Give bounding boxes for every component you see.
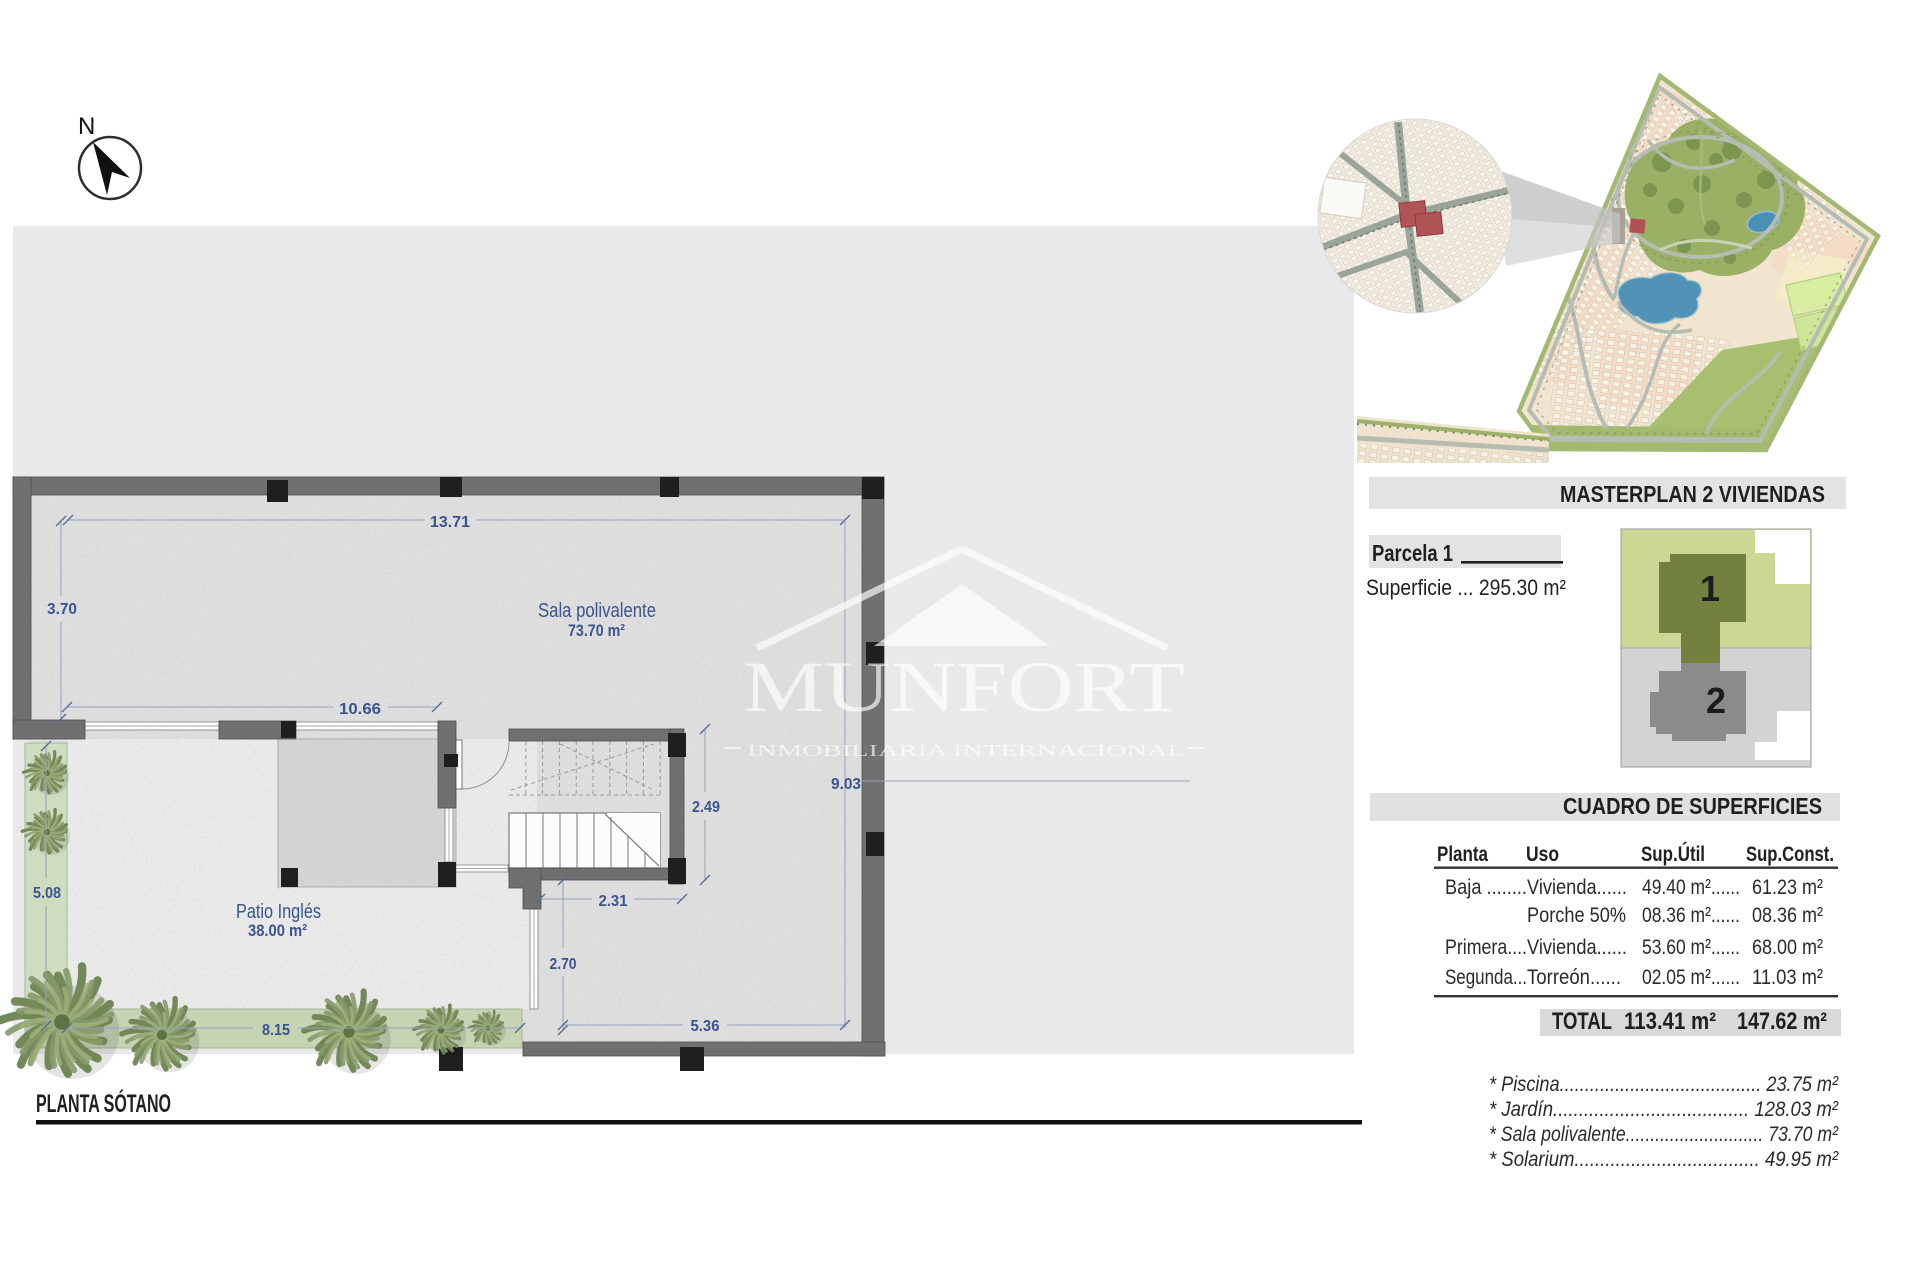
svg-text:Parcela 1: Parcela 1 <box>1372 540 1453 566</box>
svg-text:Primera....: Primera.... <box>1445 936 1527 959</box>
svg-text:38.00 m²: 38.00 m² <box>248 921 307 940</box>
svg-text:08.36 m²: 08.36 m² <box>1752 904 1823 927</box>
svg-text:Baja ........: Baja ........ <box>1445 876 1527 899</box>
svg-text:Segunda...: Segunda... <box>1445 966 1527 989</box>
svg-text:73.70 m²: 73.70 m² <box>568 621 625 640</box>
svg-text:* Piscina.....................: * Piscina...............................… <box>1489 1073 1839 1096</box>
svg-text:Sala polivalente: Sala polivalente <box>538 600 656 622</box>
svg-text:* Jardín......................: * Jardín................................… <box>1489 1098 1839 1121</box>
svg-text:* Solarium....................: * Solarium..............................… <box>1489 1148 1839 1171</box>
svg-text:10.66: 10.66 <box>339 701 381 718</box>
svg-text:2.31: 2.31 <box>599 893 628 910</box>
svg-text:* Sala polivalente............: * Sala polivalente......................… <box>1489 1123 1839 1146</box>
svg-text:5.36: 5.36 <box>691 1018 720 1035</box>
svg-text:N: N <box>78 113 95 140</box>
svg-text:2.49: 2.49 <box>692 799 720 816</box>
svg-text:Superficie ... 295.30 m²: Superficie ... 295.30 m² <box>1366 575 1566 600</box>
svg-text:113.41 m²: 113.41 m² <box>1624 1008 1716 1035</box>
svg-text:MASTERPLAN 2 VIVIENDAS: MASTERPLAN 2 VIVIENDAS <box>1560 481 1825 507</box>
svg-text:Sup.Útil: Sup.Útil <box>1641 842 1705 866</box>
svg-text:MUNFORT: MUNFORT <box>743 647 1185 727</box>
svg-text:CUADRO DE SUPERFICIES: CUADRO DE SUPERFICIES <box>1563 793 1822 819</box>
svg-text:INMOBILIARIA INTERNACIONAL: INMOBILIARIA INTERNACIONAL <box>747 741 1185 760</box>
svg-text:Vivienda......: Vivienda...... <box>1527 876 1627 899</box>
svg-text:Torreón......: Torreón...... <box>1527 966 1621 989</box>
svg-text:53.60 m²......: 53.60 m²...... <box>1642 936 1740 959</box>
svg-text:PLANTA SÓTANO: PLANTA SÓTANO <box>36 1088 171 1118</box>
svg-text:Planta: Planta <box>1437 843 1488 866</box>
svg-text:08.36 m²......: 08.36 m²...... <box>1642 904 1740 927</box>
svg-text:8.15: 8.15 <box>262 1022 290 1039</box>
svg-text:Uso: Uso <box>1526 843 1559 866</box>
svg-text:2: 2 <box>1706 680 1726 721</box>
svg-text:68.00 m²: 68.00 m² <box>1752 936 1823 959</box>
svg-text:2.70: 2.70 <box>550 956 577 973</box>
svg-text:9.03: 9.03 <box>831 776 861 793</box>
svg-text:49.40 m²......: 49.40 m²...... <box>1642 876 1740 899</box>
svg-text:02.05 m²......: 02.05 m²...... <box>1642 966 1740 989</box>
svg-text:Patio Inglés: Patio Inglés <box>236 901 321 923</box>
svg-text:Sup.Const.: Sup.Const. <box>1746 843 1834 866</box>
svg-text:61.23 m²: 61.23 m² <box>1752 876 1823 899</box>
svg-text:TOTAL: TOTAL <box>1552 1008 1612 1035</box>
svg-text:147.62 m²: 147.62 m² <box>1737 1008 1827 1035</box>
svg-text:3.70: 3.70 <box>47 601 77 618</box>
svg-text:11.03 m²: 11.03 m² <box>1752 966 1823 989</box>
svg-text:Vivienda......: Vivienda...... <box>1527 936 1627 959</box>
svg-text:Porche 50%: Porche 50% <box>1527 904 1626 927</box>
svg-text:13.71: 13.71 <box>430 514 470 531</box>
svg-text:5.08: 5.08 <box>33 885 61 902</box>
svg-text:1: 1 <box>1700 568 1720 609</box>
